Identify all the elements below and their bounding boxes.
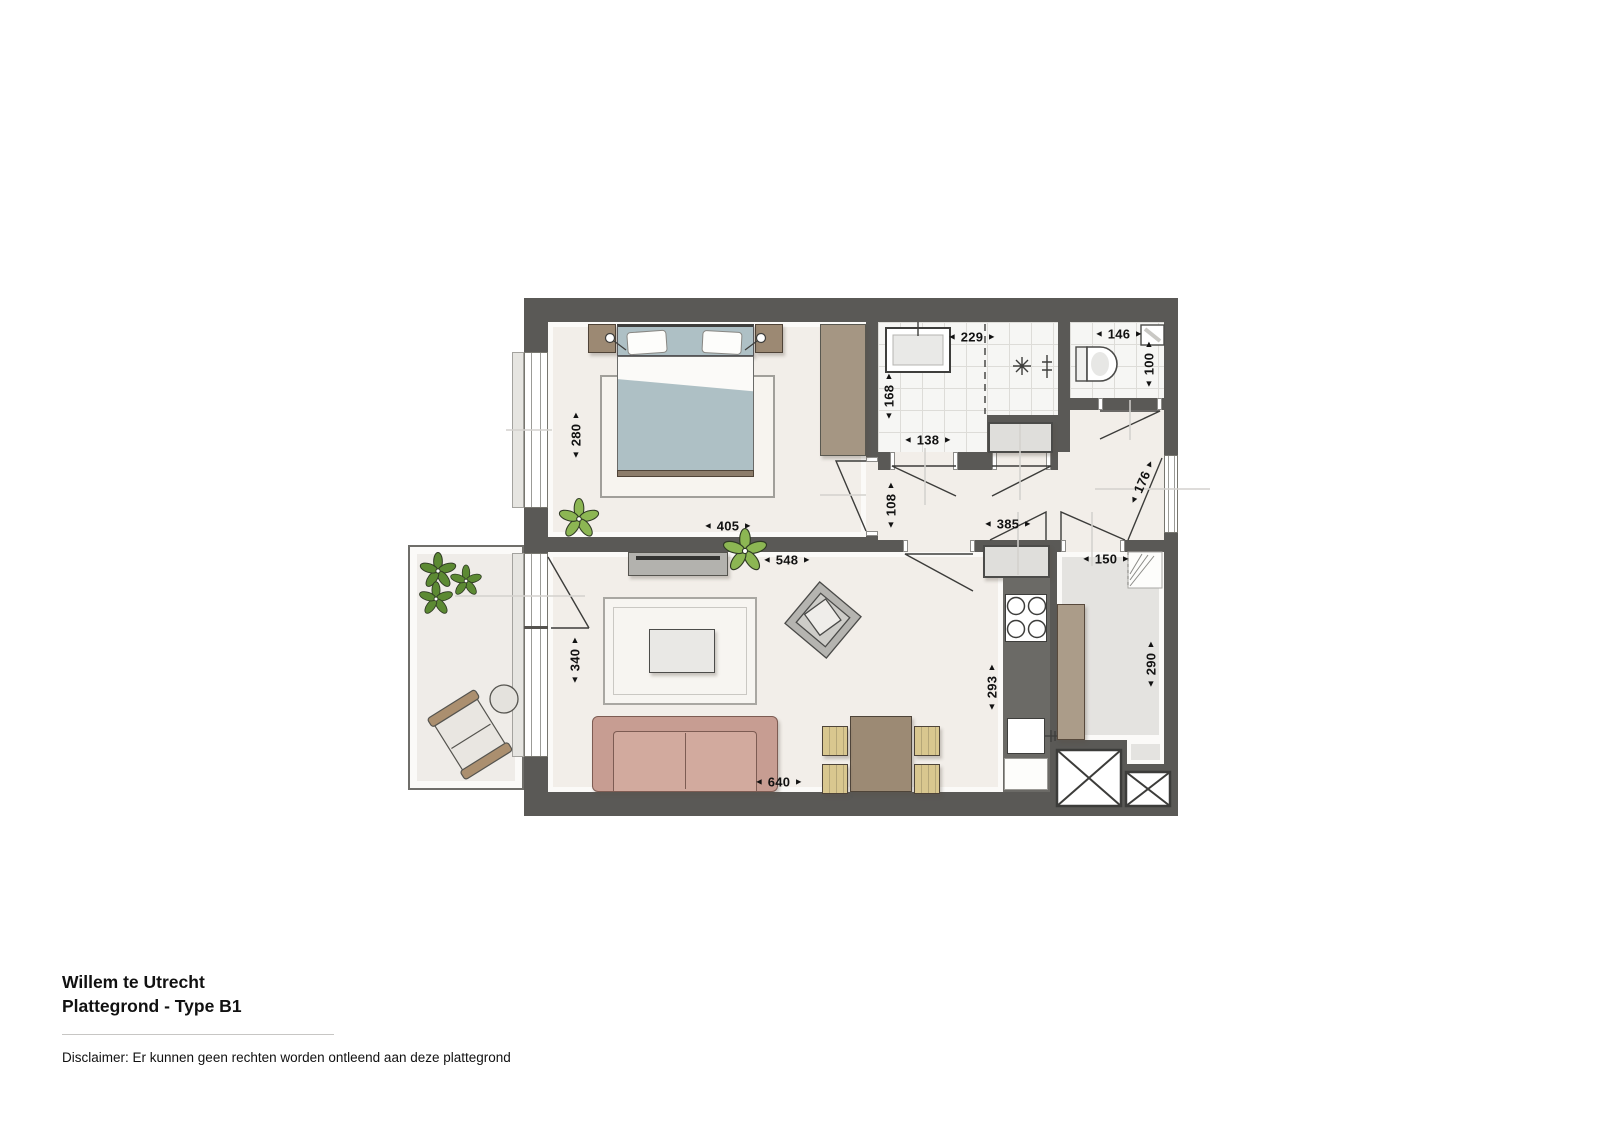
- arrow-right-icon: ►: [988, 662, 997, 671]
- arrow-left-icon: ◄: [572, 450, 581, 459]
- arrow-left-icon: ◄: [1147, 679, 1156, 688]
- project-title: Willem te Utrecht: [62, 970, 511, 994]
- dimension-hall-width: ◄108►: [884, 480, 899, 529]
- arrow-right-icon: ►: [1121, 555, 1130, 564]
- arrow-left-icon: ◄: [762, 556, 771, 565]
- dimension-bathroom-depth: ◄168►: [882, 371, 897, 420]
- floor-plan: ◄405►◄280►◄229►◄168►◄138►◄146►◄100►◄108►…: [0, 0, 1600, 1131]
- dimension-value: 280: [569, 424, 584, 447]
- arrow-right-icon: ►: [794, 778, 803, 787]
- arrow-right-icon: ►: [1147, 639, 1156, 648]
- dimension-value: 150: [1095, 552, 1118, 567]
- arrow-right-icon: ►: [887, 480, 896, 489]
- arrow-left-icon: ◄: [947, 333, 956, 342]
- dimension-value: 138: [917, 433, 940, 448]
- divider-line: [62, 1034, 334, 1035]
- caption-block: Willem te Utrecht Plattegrond - Type B1 …: [62, 970, 511, 1066]
- arrow-left-icon: ◄: [754, 778, 763, 787]
- arrow-left-icon: ◄: [571, 675, 580, 684]
- arrow-left-icon: ◄: [983, 520, 992, 529]
- dimension-bathroom-inner-width: ◄138►: [903, 433, 952, 448]
- dimension-value: 100: [1142, 353, 1157, 376]
- dimension-value: 168: [882, 385, 897, 408]
- dimension-value: 146: [1108, 327, 1131, 342]
- arrow-right-icon: ►: [885, 371, 894, 380]
- arrow-right-icon: ►: [802, 556, 811, 565]
- arrow-left-icon: ◄: [903, 436, 912, 445]
- arrow-right-icon: ►: [1145, 339, 1154, 348]
- arrow-left-icon: ◄: [1128, 494, 1140, 506]
- dimension-value: 640: [768, 775, 791, 790]
- dimension-living-bottom-width: ◄640►: [754, 775, 803, 790]
- dimension-toilet-depth: ◄100►: [1142, 339, 1157, 388]
- arrow-left-icon: ◄: [1145, 379, 1154, 388]
- dimension-labels: ◄405►◄280►◄229►◄168►◄138►◄146►◄100►◄108►…: [0, 0, 1600, 1131]
- arrow-left-icon: ◄: [988, 702, 997, 711]
- dimension-bathroom-width: ◄229►: [947, 330, 996, 345]
- dimension-storage-width: ◄150►: [1081, 552, 1130, 567]
- dimension-kitchen-depth: ◄293►: [985, 662, 1000, 711]
- arrow-right-icon: ►: [943, 436, 952, 445]
- dimension-bedroom-depth: ◄280►: [569, 410, 584, 459]
- arrow-right-icon: ►: [572, 410, 581, 419]
- dimension-living-width: ◄548►: [762, 553, 811, 568]
- dimension-value: 548: [776, 553, 799, 568]
- dimension-value: 385: [997, 517, 1020, 532]
- dimension-storage-depth: ◄290►: [1144, 639, 1159, 688]
- disclaimer-text: Disclaimer: Er kunnen geen rechten worde…: [62, 1049, 511, 1066]
- dimension-value: 293: [985, 676, 1000, 699]
- arrow-left-icon: ◄: [887, 520, 896, 529]
- dimension-value: 229: [961, 330, 984, 345]
- dimension-value: 340: [568, 649, 583, 672]
- arrow-left-icon: ◄: [1094, 330, 1103, 339]
- arrow-left-icon: ◄: [1081, 555, 1090, 564]
- arrow-right-icon: ►: [1134, 330, 1143, 339]
- arrow-left-icon: ◄: [885, 411, 894, 420]
- dimension-entrance-door-width: ◄176►: [1125, 457, 1159, 508]
- arrow-right-icon: ►: [1144, 458, 1156, 470]
- dimension-bedroom-width: ◄405►: [703, 519, 752, 534]
- arrow-left-icon: ◄: [703, 522, 712, 531]
- dimension-toilet-width: ◄146►: [1094, 327, 1143, 342]
- arrow-right-icon: ►: [743, 522, 752, 531]
- arrow-right-icon: ►: [571, 635, 580, 644]
- dimension-value: 108: [884, 494, 899, 517]
- plan-title: Plattegrond - Type B1: [62, 994, 511, 1018]
- arrow-right-icon: ►: [1023, 520, 1032, 529]
- dimension-value: 176: [1131, 469, 1154, 496]
- arrow-right-icon: ►: [987, 333, 996, 342]
- dimension-living-depth: ◄340►: [568, 635, 583, 684]
- dimension-value: 290: [1144, 653, 1159, 676]
- dimension-hall-length: ◄385►: [983, 517, 1032, 532]
- dimension-value: 405: [717, 519, 740, 534]
- floorplan-page: ◄405►◄280►◄229►◄168►◄138►◄146►◄100►◄108►…: [0, 0, 1600, 1131]
